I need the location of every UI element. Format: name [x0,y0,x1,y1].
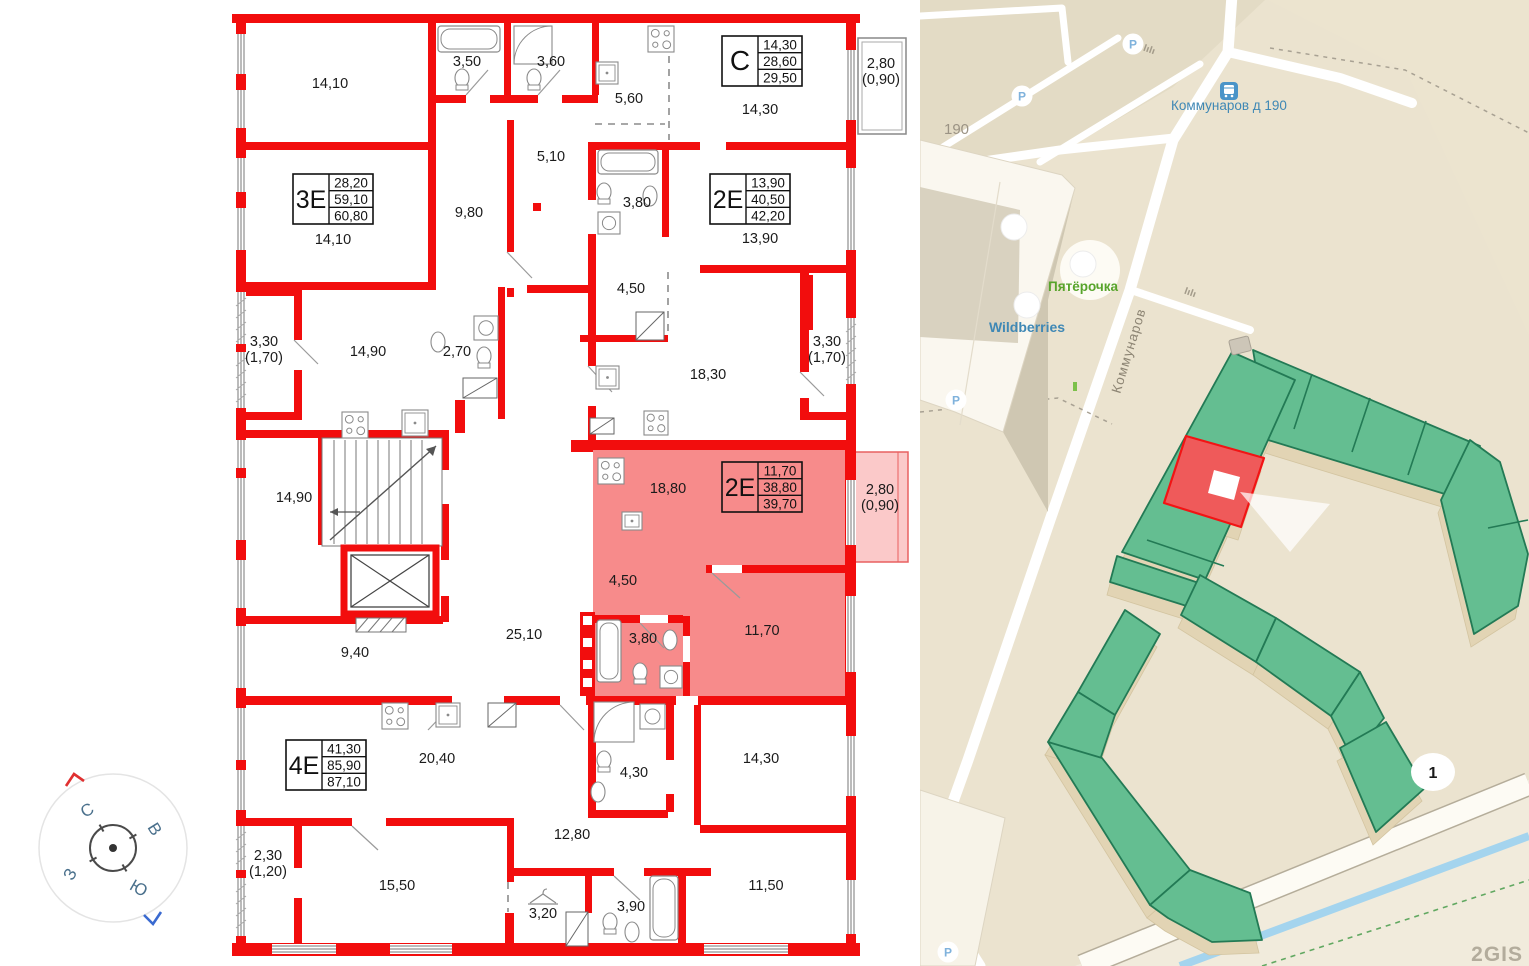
apartment-area-value: 39,70 [763,497,797,512]
sink-icon [622,512,642,530]
vent-shaft [583,678,592,687]
poi-circle [1014,292,1040,318]
toilet-icon [633,663,647,684]
room-area-text: 14,10 [315,232,351,248]
page: С14,3028,6029,503Е28,2059,1060,802Е13,90… [0,0,1529,966]
wall [805,275,813,330]
wall [232,14,860,23]
apartment-info-table[interactable]: 4Е41,3085,9087,10 [286,740,366,790]
shower-icon [594,702,634,742]
room-area-text: 2,80 [867,56,895,72]
block-number-label[interactable]: 190 [944,121,969,138]
room-area-label: 13,90 [742,231,778,247]
pyaterochka-label[interactable]: Пятёрочка [1048,279,1118,294]
window [846,168,856,250]
door-opening [466,95,490,103]
vent-shaft [583,616,592,625]
window [236,626,246,688]
toilet-icon [597,183,611,204]
door-opening [676,696,698,705]
wall [588,810,668,818]
bus-stop-label[interactable]: Коммунаров д 190 [1171,98,1287,113]
room-area-label: 4,50 [609,573,637,589]
window [846,596,856,672]
parking-icon[interactable]: Р [946,390,967,411]
apartment-area-value: 28,60 [763,54,797,69]
room-area-label: 11,70 [744,623,779,639]
window [236,708,246,760]
wall [678,868,686,943]
room-area-label: 3,80 [623,195,651,211]
room-area-label: 3,30(1,70) [808,334,846,366]
apartment-area-value: 14,30 [763,37,797,52]
room-area-text: 9,40 [341,645,369,661]
room-area-text: 4,30 [620,765,648,781]
window [846,50,856,120]
map-svg[interactable]: РРРР190Коммунаров д 190ПятёрочкаWildberr… [920,0,1529,966]
room-area-text: 25,10 [506,627,542,643]
wildberries-label[interactable]: Wildberries [989,319,1065,335]
apartment-type-label: 2Е [725,474,756,502]
apartment-area-value: 87,10 [327,775,361,790]
room-area-text: 13,90 [742,231,778,247]
door-opening [560,696,586,705]
room-area-text: 2,70 [443,344,471,360]
gate-mark [1073,382,1077,391]
room-area-label: 20,40 [419,751,455,767]
room-area-text: 2,30 [254,848,282,864]
vent-shaft [583,638,592,647]
sink-icon [436,703,460,727]
room-area-text: 5,60 [615,91,643,107]
window [236,292,246,344]
room-area-text: 11,70 [744,623,779,639]
bathtub-icon [597,620,621,682]
wall [241,696,851,705]
wall [694,700,701,825]
window [236,90,246,128]
room-area-label: 3,90 [617,899,645,915]
room-area-label: 14,10 [312,76,348,92]
apartment-area-value: 42,20 [751,209,785,224]
window [846,736,856,796]
room-area-text: 2,80 [866,482,894,498]
wall [700,265,851,273]
room-area-label: 3,30(1,70) [245,334,283,366]
sink-icon [591,782,605,802]
room-area-text: 18,30 [690,367,726,383]
wall [700,825,851,833]
room-area-text: 3,90 [617,899,645,915]
compass-center-dot [109,844,117,852]
parking-icon[interactable]: Р [1012,86,1033,107]
bathtub-icon [438,26,500,52]
window [236,440,246,468]
room-area-label: 15,50 [379,878,415,894]
parking-letter: Р [944,946,952,960]
wall [504,14,511,103]
apartment-type-label: С [730,45,750,76]
bathtub-icon [650,876,678,940]
room-area-label: 9,40 [341,645,369,661]
hatch-box [488,703,516,727]
room-area-label: 2,30(1,20) [249,848,287,880]
washer-icon [598,212,620,234]
room-area-text: 20,40 [419,751,455,767]
apartment-area-value: 85,90 [327,758,361,773]
room-area-text: 14,10 [312,76,348,92]
room-area-label: 9,80 [455,205,483,221]
parking-icon[interactable]: Р [1123,34,1144,55]
room-area-label: 25,10 [506,627,542,643]
wall [533,203,541,211]
apartment-type-label: 2Е [713,186,744,214]
sink-icon [596,62,618,84]
room-area-text: 18,80 [650,481,686,497]
window [236,826,246,870]
room-area-label: 3,20 [529,906,557,922]
window [236,34,246,74]
door-opening [614,868,644,876]
toilet-icon [603,913,617,934]
room-area-text: 9,80 [455,205,483,221]
room-area-label: 18,80 [650,481,686,497]
room-area-text: 3,30 [250,334,278,350]
room-area-label: 3,80 [629,631,657,647]
wall [585,868,592,913]
stove-icon [382,703,408,729]
wall [428,14,436,103]
entrance-marker[interactable]: 1 [1411,753,1455,791]
apartment-area-value: 28,20 [334,175,368,190]
stove-icon [598,458,624,484]
stove-icon [648,26,674,52]
door-opening [538,95,562,103]
floor-plan-svg: С14,3028,6029,503Е28,2059,1060,802Е13,90… [0,0,920,966]
window [236,158,246,192]
poi-circle [1001,214,1027,240]
wall [571,440,593,452]
room-area-label: 12,80 [554,827,590,843]
room-area-text: (0,90) [861,498,899,514]
room-area-label: 2,80(0,90) [862,56,900,88]
stove-icon [644,411,668,435]
door-opening [294,868,302,898]
window [236,878,246,936]
toilet-icon [527,69,541,90]
apartment-area-value: 41,30 [327,741,361,756]
room-area-text: 5,10 [537,149,565,165]
wall [507,818,514,882]
window [236,478,246,540]
wall [588,440,851,450]
room-area-text: 3,50 [453,54,481,70]
apartment-area-value: 13,90 [751,175,785,190]
wall [455,400,465,433]
apartment-area-value: 59,10 [334,192,368,207]
door-opening [640,615,668,623]
hatch-box [590,418,614,434]
toilet-icon [477,347,491,368]
parking-letter: Р [1129,38,1137,52]
room-area-text: 14,90 [276,490,312,506]
apartment-area-value: 40,50 [751,192,785,207]
room-area-label: 5,60 [615,91,643,107]
room-area-text: 4,50 [617,281,645,297]
apartment-type-label: 4Е [289,752,320,780]
apartment-area-value: 60,80 [334,209,368,224]
poi-circle [1070,251,1096,277]
room-area-text: 12,80 [554,827,590,843]
door-opening [352,818,386,826]
wall [241,412,302,420]
room-area-text: (1,70) [808,350,846,366]
door-opening [683,636,690,662]
room-area-label: 2,70 [443,344,471,360]
wall [662,142,669,237]
apartment-info-table[interactable]: С14,3028,6029,50 [722,36,802,86]
wall [241,142,433,150]
sink-icon [663,630,677,650]
room-area-text: 3,80 [623,195,651,211]
wall [498,287,505,419]
room-area-text: 14,30 [742,102,778,118]
door-opening [588,200,596,234]
apartment-info-table[interactable]: 3Е28,2059,1060,80 [293,174,373,224]
window [236,770,246,810]
wall [241,288,302,296]
stairs-outline [322,438,442,546]
room-area-label: 18,30 [690,367,726,383]
compass: СВЗЮ [39,774,187,924]
door-opening [588,366,596,406]
room-area-text: 3,30 [813,334,841,350]
map-watermark[interactable]: 2GIS [1471,943,1523,966]
apartment-area-value: 11,70 [764,463,797,478]
room-area-label: 5,10 [537,149,565,165]
window [846,880,856,934]
room-area-text: 15,50 [379,878,415,894]
window [390,944,452,954]
apartment-info-table[interactable]: 2Е13,9040,5042,20 [710,174,790,224]
window [846,480,856,545]
room-area-text: 14,90 [350,344,386,360]
washer-icon [660,666,682,688]
wall [666,700,674,812]
apartment-area-value: 38,80 [763,480,797,495]
vent-shaft [583,660,592,669]
wall [527,285,590,293]
marker-number: 1 [1429,765,1438,782]
hatch-box [636,312,664,340]
door-opening [666,760,674,794]
room-area-label: 3,50 [453,54,481,70]
room-area-text: (1,70) [245,350,283,366]
door-opening [712,565,742,573]
room-area-label: 2,80(0,90) [861,482,899,514]
room-area-label: 14,30 [742,102,778,118]
sink-icon [402,410,428,436]
room-area-text: 3,80 [629,631,657,647]
room-area-text: 14,30 [743,751,779,767]
door-opening [700,142,726,150]
window [236,560,246,608]
room-area-text: 3,60 [537,54,565,70]
room-area-label: 4,50 [617,281,645,297]
room-area-label: 14,90 [350,344,386,360]
staircase [322,438,442,546]
apartment-area-value: 29,50 [763,71,797,86]
room-area-text: (1,20) [249,864,287,880]
window [272,944,336,954]
room-area-text: 4,50 [609,573,637,589]
washer-icon [474,316,498,340]
hatch-box [463,378,497,398]
room-area-label: 3,60 [537,54,565,70]
apartment-type-label: 3Е [296,186,327,214]
washer-icon [640,704,665,729]
window [846,318,856,384]
wall [428,95,598,103]
room-area-label: 14,30 [743,751,779,767]
door-opening [441,560,449,596]
room-area-label: 11,50 [748,878,783,894]
sink-icon [596,366,619,389]
stove-icon [342,412,368,438]
parking-letter: Р [952,394,960,408]
wall [505,913,514,945]
toilet-icon [455,69,469,90]
hatch-box [566,912,588,946]
wall [428,95,436,290]
room-area-text: 11,50 [748,878,783,894]
room-area-label: 4,30 [620,765,648,781]
window [236,208,246,250]
parking-letter: Р [1018,90,1026,104]
bathtub-icon [598,150,658,174]
room-area-text: (0,90) [862,72,900,88]
toilet-icon [597,751,611,772]
parking-icon[interactable]: Р [938,942,959,963]
sink-icon [625,922,639,942]
room-area-label: 14,90 [276,490,312,506]
window [704,944,788,954]
room-area-label: 14,10 [315,232,351,248]
room-area-text: 3,20 [529,906,557,922]
